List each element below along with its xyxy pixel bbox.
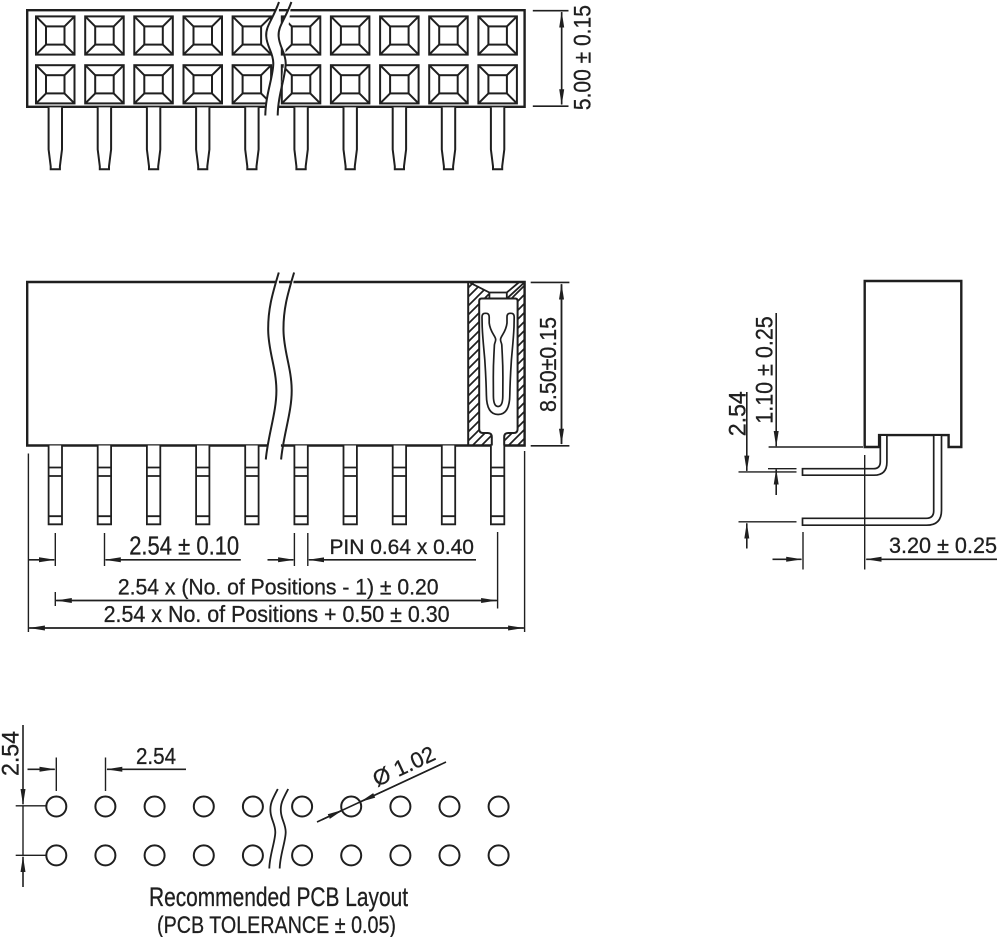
svg-text:2.54 ± 0.10: 2.54 ± 0.10 xyxy=(129,531,239,561)
svg-text:PIN 0.64 x 0.40: PIN 0.64 x 0.40 xyxy=(329,536,474,559)
svg-text:Recommended PCB Layout: Recommended PCB Layout xyxy=(149,882,408,912)
svg-text:3.20 ± 0.25: 3.20 ± 0.25 xyxy=(889,533,997,558)
svg-text:(PCB TOLERANCE ± 0.05): (PCB TOLERANCE ± 0.05) xyxy=(157,912,396,937)
svg-text:5.00 ± 0.15: 5.00 ± 0.15 xyxy=(569,5,596,110)
svg-text:2.54: 2.54 xyxy=(725,391,752,436)
svg-text:1.10 ± 0.25: 1.10 ± 0.25 xyxy=(752,316,779,424)
svg-text:8.50±0.15: 8.50±0.15 xyxy=(535,317,561,412)
svg-text:2.54 x No. of Positions + 0.50: 2.54 x No. of Positions + 0.50 ± 0.30 xyxy=(104,601,450,627)
svg-text:2.54: 2.54 xyxy=(0,731,24,776)
svg-text:2.54 x (No. of Positions - 1): 2.54 x (No. of Positions - 1) ± 0.20 xyxy=(118,574,439,599)
svg-text:Ø 1.02: Ø 1.02 xyxy=(369,741,439,792)
svg-text:2.54: 2.54 xyxy=(136,743,176,769)
